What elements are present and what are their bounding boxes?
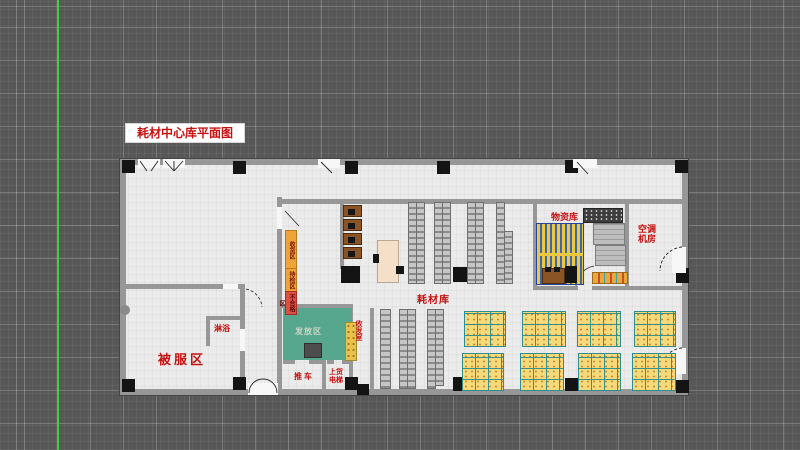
- column: [675, 160, 688, 173]
- column: [676, 380, 689, 393]
- door-gap: [277, 207, 282, 229]
- hvac-room-label: 空调 机房: [638, 225, 656, 245]
- wall-joint: [120, 305, 130, 315]
- chair: [348, 209, 355, 215]
- wall-materials-bottom-a: [533, 286, 578, 290]
- storage-rack: [381, 310, 390, 388]
- printer: [396, 266, 404, 274]
- cabinet-black: [565, 266, 577, 283]
- dispatch-area-label: 发放区: [295, 326, 322, 337]
- door-swing-icon: [163, 159, 185, 173]
- zone-sign-receiving: 收货区: [286, 231, 296, 268]
- pallet-block: [523, 312, 565, 346]
- chair: [554, 267, 560, 272]
- storage-rack: [476, 203, 483, 283]
- storage-rack: [409, 203, 416, 283]
- pallet-block: [463, 354, 503, 390]
- column: [345, 161, 358, 174]
- chair: [373, 254, 379, 263]
- pallet-block: [521, 354, 563, 390]
- storage-rack: [400, 310, 407, 388]
- pallet-block: [465, 312, 505, 346]
- column: [565, 378, 578, 391]
- column: [122, 379, 135, 392]
- door-swing-icon: [244, 287, 266, 311]
- wall-corridor2-right: [370, 308, 374, 390]
- pallet-block: [579, 354, 620, 390]
- wall-materials-bottom-b: [592, 286, 625, 290]
- door-swing-icon: [573, 159, 599, 179]
- wall-room-divider: [322, 360, 326, 390]
- mail-room-label: 收发室: [354, 320, 363, 341]
- door-gap: [240, 329, 245, 351]
- column: [233, 377, 246, 390]
- wall-lift-top-b: [342, 360, 349, 364]
- door-swing-icon: [283, 208, 305, 232]
- storage-rack: [497, 203, 504, 283]
- door-swing-icon: [656, 245, 684, 275]
- door-swing-icon: [318, 159, 342, 177]
- door-swing-icon: [138, 159, 160, 173]
- door-gap: [223, 284, 238, 289]
- shelf-gray: [596, 246, 625, 265]
- wall-lift-top-a: [327, 360, 334, 364]
- storage-rack: [443, 203, 450, 283]
- cad-canvas[interactable]: 耗材中心库平面图: [0, 0, 800, 450]
- storage-rack: [435, 203, 442, 283]
- chair: [348, 251, 355, 257]
- consumables-store-label: 耗材库: [417, 291, 450, 306]
- wall-trolley-top-b: [309, 360, 323, 364]
- double-door-swing-icon: [246, 371, 280, 395]
- wall-trolley-top-a: [283, 360, 295, 364]
- pallet-block: [633, 354, 675, 390]
- hvac-room-label-line2: 机房: [638, 235, 656, 245]
- room-dispatch-area: 发放区: [283, 308, 352, 360]
- pallet-block: [635, 312, 675, 346]
- goods-lift-label-line2: 电梯: [329, 376, 343, 384]
- storage-rack: [468, 203, 475, 283]
- checkout-counter: [593, 273, 627, 283]
- trolley-room-label: 推车: [294, 371, 314, 382]
- work-desk: [378, 241, 398, 282]
- axis-line-green: [57, 0, 59, 450]
- pallet-block: [578, 312, 620, 346]
- storage-rack: [428, 310, 435, 388]
- pillar: [357, 384, 369, 395]
- storage-rack: [408, 310, 415, 388]
- wall-outer-left: [120, 159, 126, 395]
- chair: [545, 267, 551, 272]
- plan-title: 耗材中心库平面图: [126, 124, 244, 142]
- column: [233, 161, 246, 174]
- storage-rack: [417, 203, 424, 283]
- wall-hvac-bottom: [625, 286, 684, 290]
- linen-area-label: 被服区: [158, 349, 206, 368]
- chair: [348, 237, 355, 243]
- wall-shower-bottom: [206, 316, 244, 320]
- wall-shower-left: [206, 316, 210, 346]
- pillar: [453, 267, 467, 282]
- column: [122, 160, 135, 173]
- materials-store-label: 物资库: [551, 210, 578, 223]
- goods-lift-label: 上货 电梯: [329, 368, 343, 384]
- wall-outer-top: [120, 159, 688, 165]
- goods-lift-label-line1: 上货: [329, 368, 343, 376]
- shelf-divider: [537, 253, 583, 256]
- zone-sign-reject: 不合格区: [286, 292, 296, 314]
- storage-rack: [436, 310, 443, 385]
- storage-rack: [505, 232, 512, 283]
- column: [437, 161, 450, 174]
- shower-label: 淋浴: [214, 323, 230, 334]
- table: [305, 344, 321, 357]
- hvac-room-label-line1: 空调: [638, 225, 656, 235]
- chair: [348, 223, 355, 229]
- pillar: [341, 266, 360, 283]
- zone-sign-inspection: 待检区: [286, 269, 296, 291]
- shelf-dark: [584, 209, 622, 222]
- shelf-gray: [594, 224, 624, 244]
- floor-plan[interactable]: 发放区 收货区 待检区 不合格区: [120, 159, 688, 395]
